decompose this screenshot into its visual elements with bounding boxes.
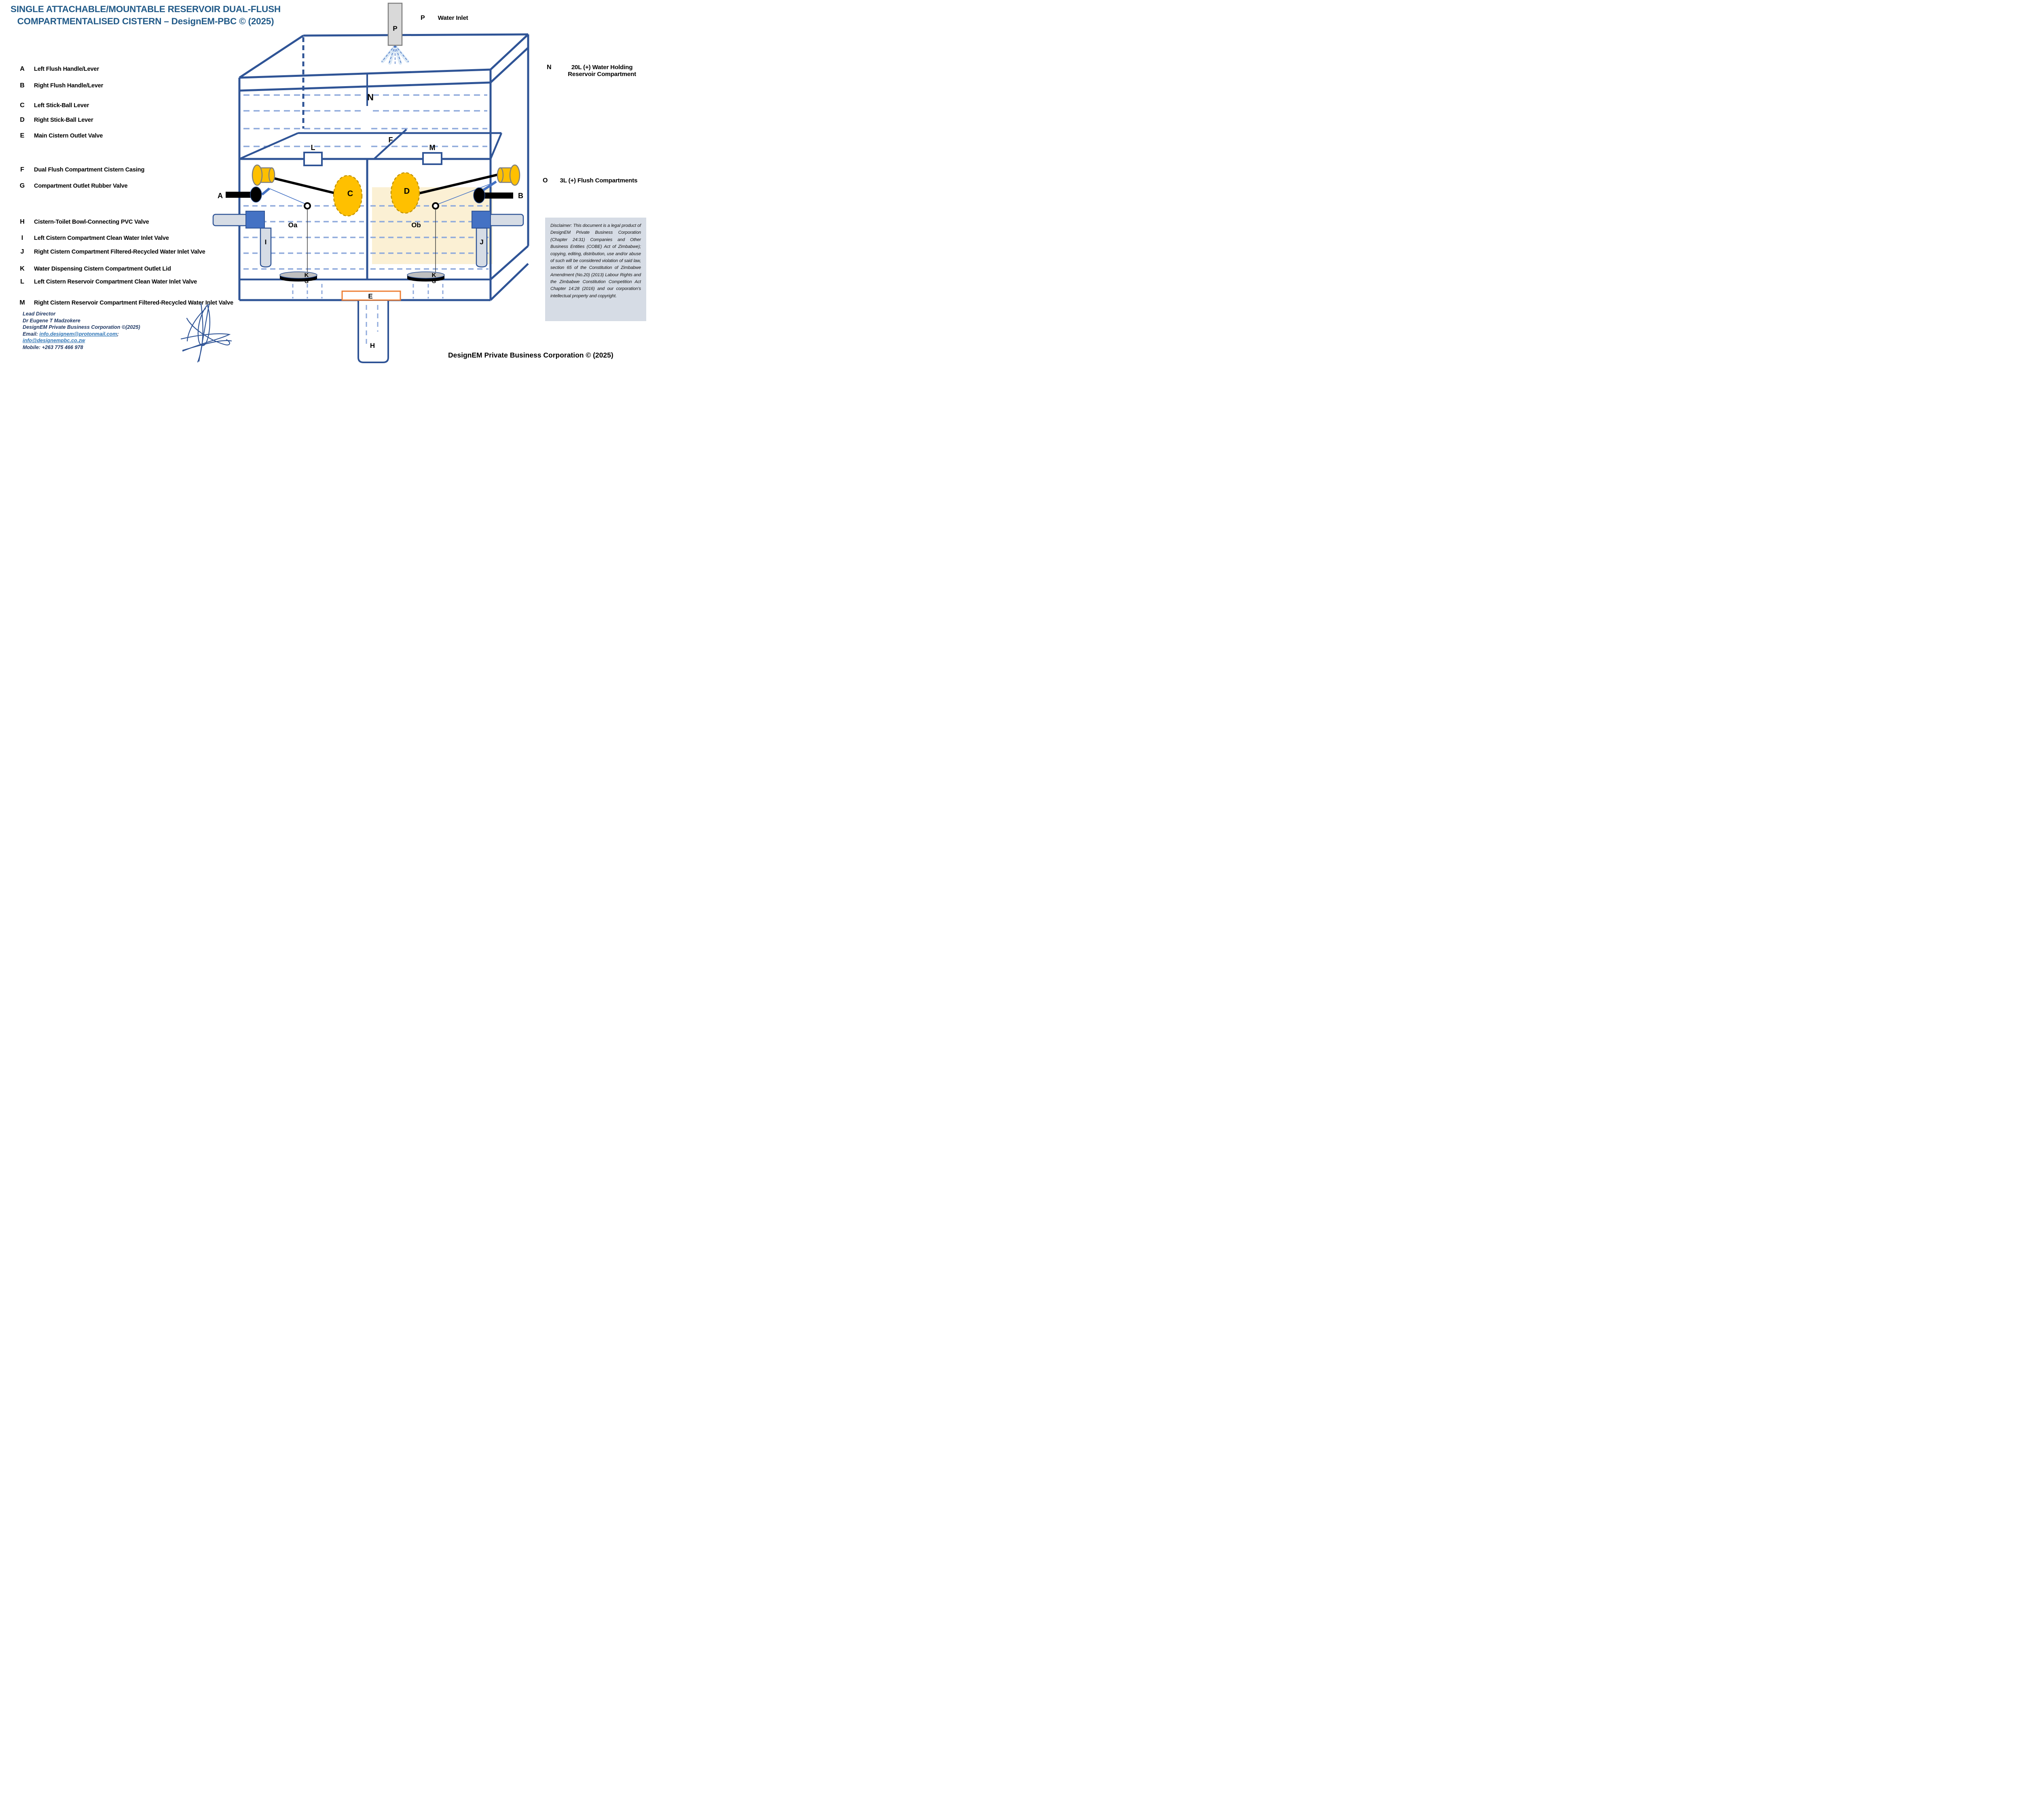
label-g-right: G	[432, 278, 436, 284]
signature-scribble	[181, 303, 231, 362]
label-i: I	[265, 238, 267, 246]
label-ob: Ob	[411, 221, 421, 229]
o-ring-left	[305, 203, 310, 209]
label-p: P	[393, 25, 397, 32]
label-d: D	[404, 187, 410, 196]
left-flush-valve-seat	[252, 165, 275, 185]
valve-l	[304, 152, 322, 165]
right-handle-knob	[474, 188, 485, 203]
label-j: J	[480, 238, 483, 246]
label-g-left: G	[305, 278, 309, 284]
left-stick-rod	[273, 178, 336, 193]
label-k-left: K	[305, 272, 309, 279]
right-flush-handle[interactable]	[483, 193, 513, 199]
right-outlet-lid	[407, 272, 444, 281]
label-oa: Oa	[288, 221, 298, 229]
left-inlet-fitting	[246, 211, 264, 228]
left-outlet-lid	[280, 272, 317, 281]
cistern-diagram-page: SINGLE ATTACHABLE/MOUNTABLE RESERVOIR DU…	[0, 0, 647, 364]
label-h: H	[370, 342, 375, 349]
valve-m	[423, 153, 442, 164]
label-a: A	[218, 192, 223, 200]
left-flush-handle[interactable]	[226, 192, 253, 198]
label-f: F	[389, 136, 393, 144]
cistern-diagram: N F L M C D A B Oa Ob I J K K G G E H P	[0, 0, 647, 364]
left-inlet-pipe-vertical	[260, 228, 271, 267]
label-n: N	[367, 92, 374, 102]
right-inlet-fitting	[472, 211, 491, 228]
label-m: M	[429, 144, 436, 152]
left-inlet-pipe-horizontal	[213, 214, 247, 226]
label-k-right: K	[432, 272, 436, 279]
reservoir-water-lines	[243, 95, 487, 146]
water-inlet-pipe	[382, 3, 408, 64]
label-c: C	[347, 189, 353, 198]
inlet-pipe-body	[388, 3, 402, 45]
o-ring-right	[433, 203, 438, 209]
left-pull-wire	[269, 188, 306, 204]
left-handle-knob	[250, 187, 262, 202]
toilet-connecting-pipe	[358, 301, 388, 362]
reservoir-floor	[239, 129, 501, 159]
label-e: E	[368, 292, 372, 300]
label-b: B	[518, 192, 523, 200]
right-inlet-pipe-vertical	[476, 228, 487, 267]
left-inlet-valve	[213, 211, 271, 267]
label-l: L	[311, 144, 315, 152]
right-flush-valve-seat	[497, 165, 520, 185]
left-lever-link	[262, 188, 269, 195]
right-inlet-pipe-horizontal	[489, 214, 523, 226]
